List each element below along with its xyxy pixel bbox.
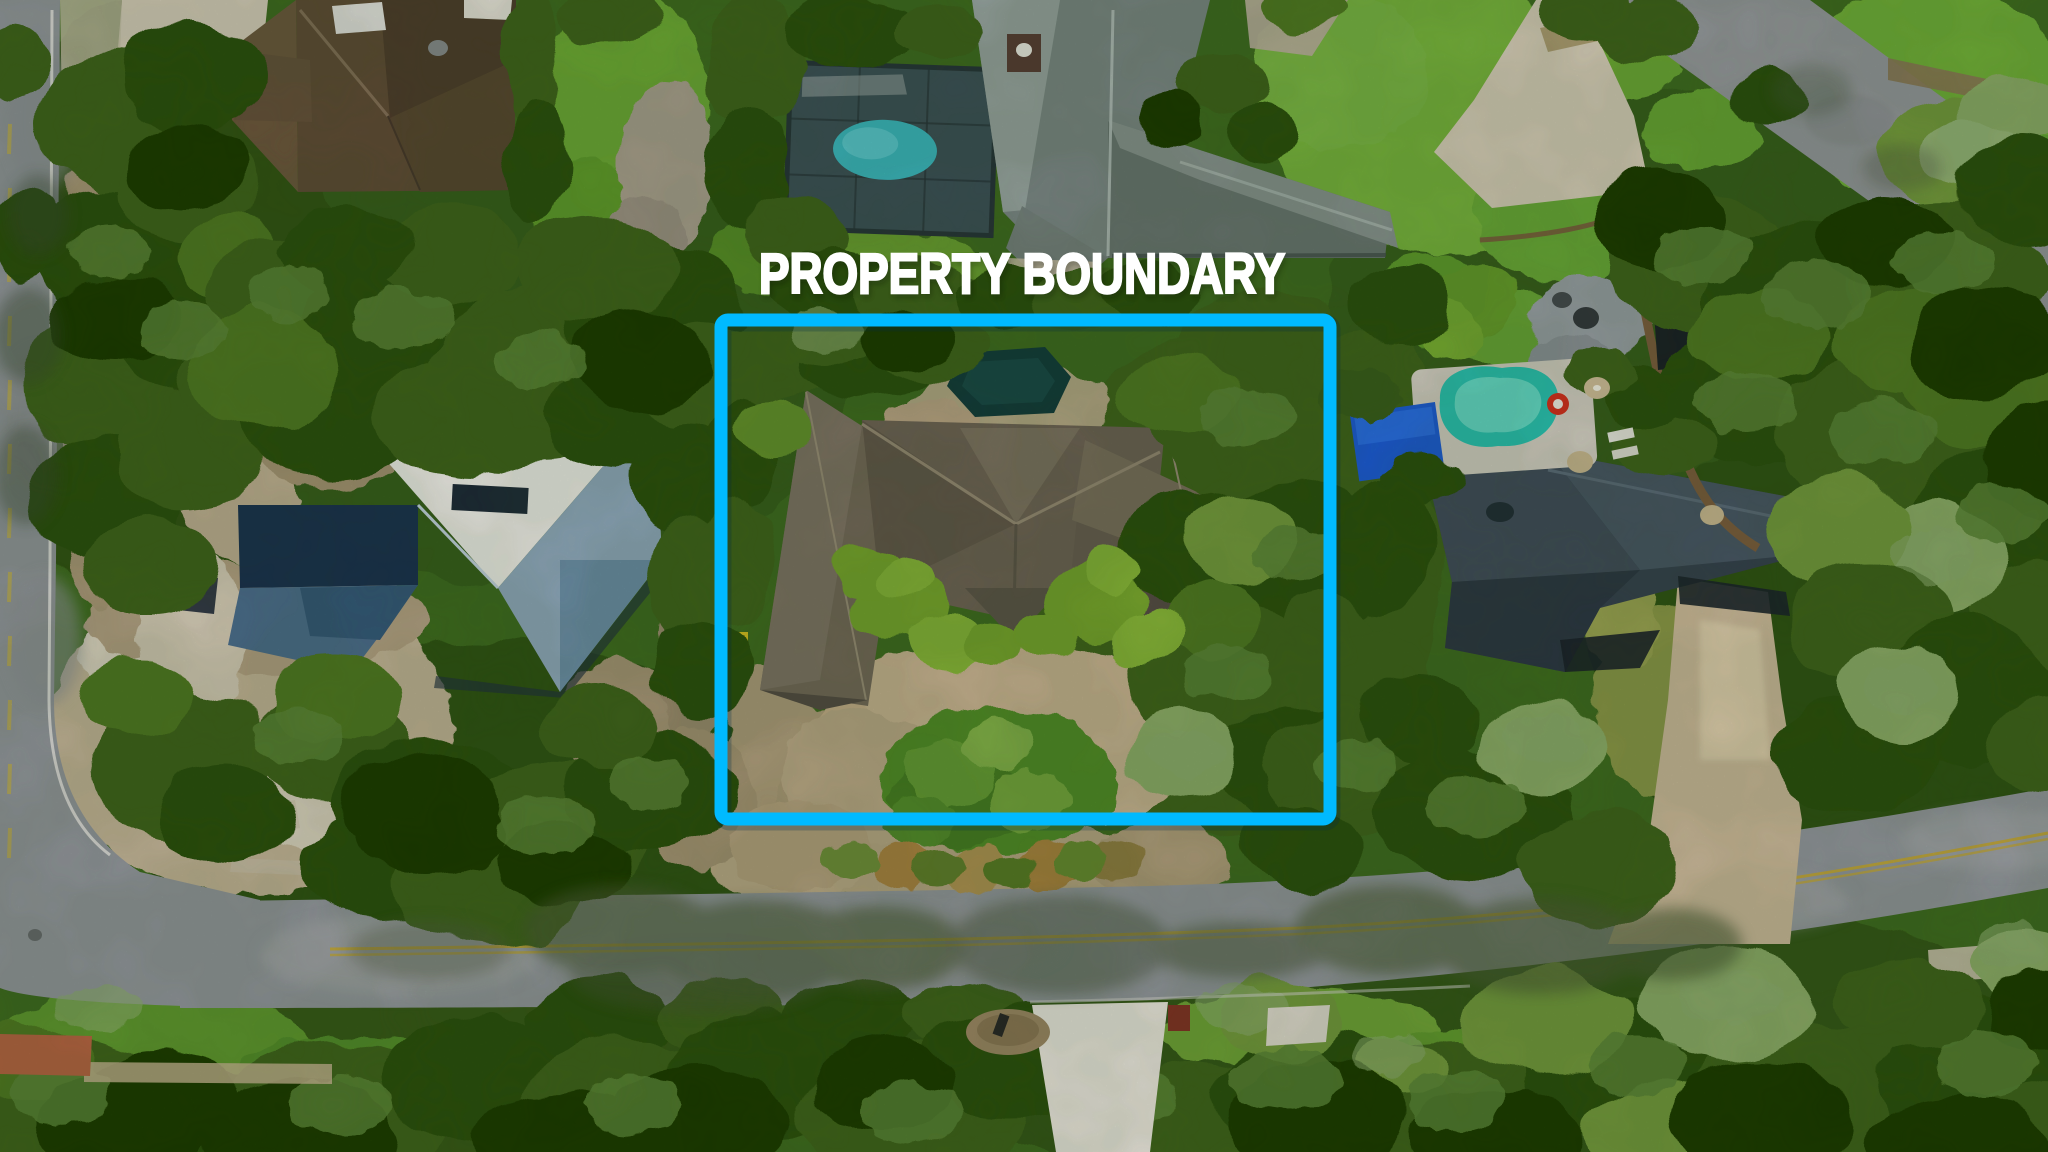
svg-text:PROPERTY BOUNDARY: PROPERTY BOUNDARY [759,242,1285,306]
